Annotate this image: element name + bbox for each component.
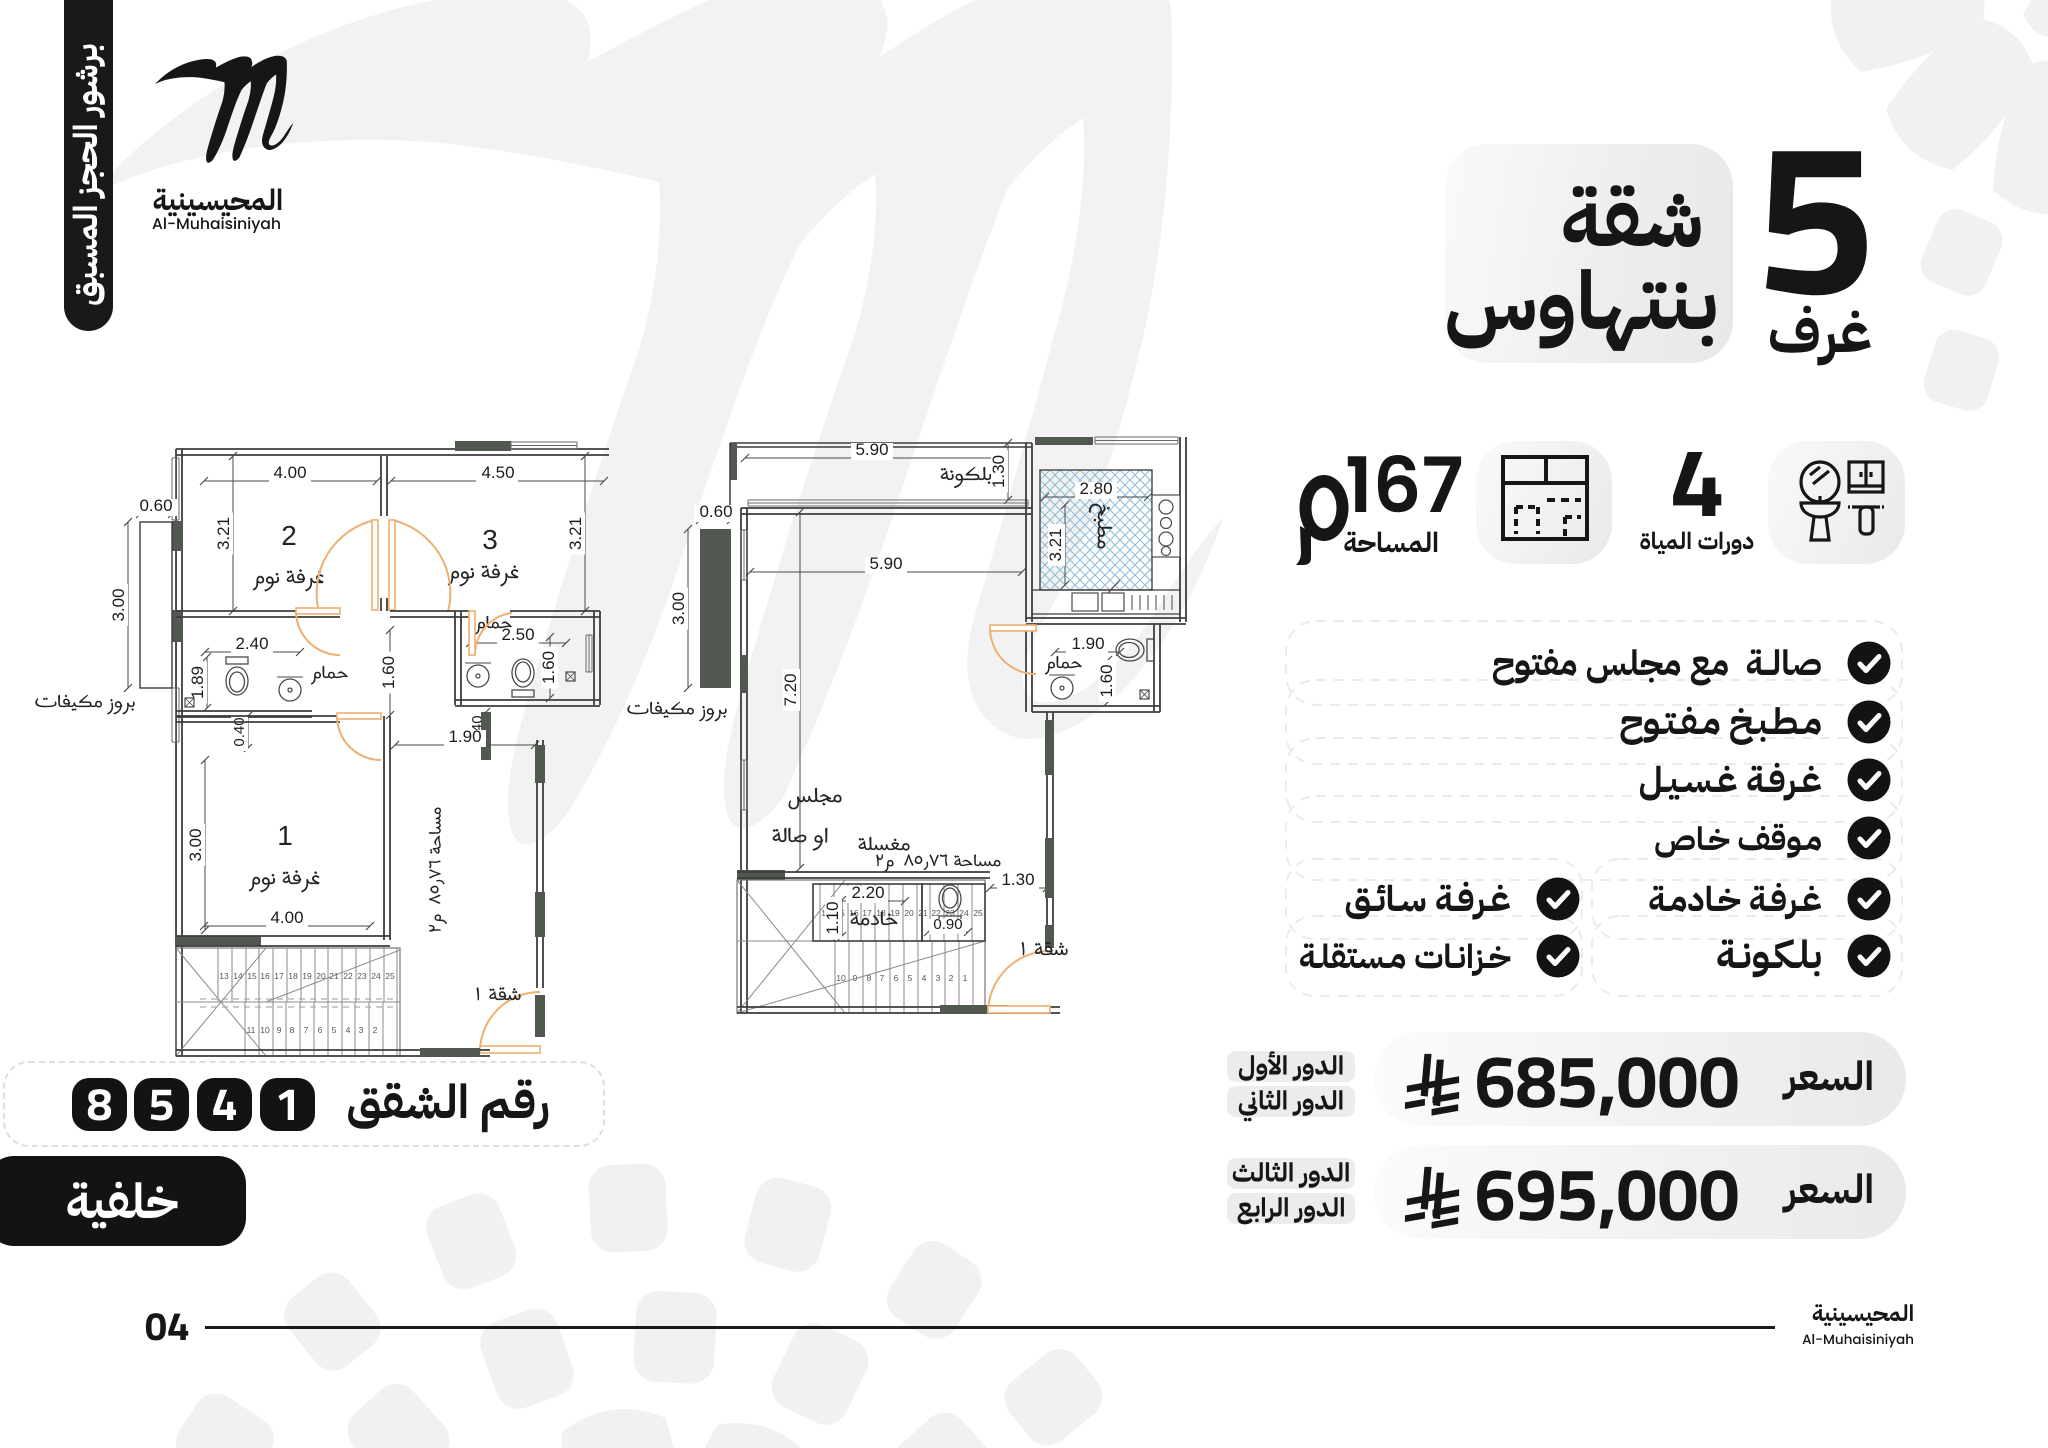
svg-text:1.30: 1.30 (989, 455, 1008, 488)
svg-text:0.90: 0.90 (933, 916, 962, 933)
svg-text:18: 18 (288, 971, 298, 981)
svg-text:2: 2 (373, 1025, 378, 1035)
svg-text:4.00: 4.00 (270, 908, 303, 927)
svg-text:2.20: 2.20 (851, 883, 884, 902)
svg-text:21: 21 (918, 908, 928, 918)
svg-text:14: 14 (233, 971, 243, 981)
svg-text:3.21: 3.21 (566, 517, 585, 550)
svg-text:0.60: 0.60 (139, 496, 172, 515)
svg-text:3.21: 3.21 (214, 517, 233, 550)
svg-text:17: 17 (862, 908, 872, 918)
svg-text:7.20: 7.20 (781, 673, 800, 706)
svg-text:10: 10 (260, 1025, 270, 1035)
svg-text:6: 6 (318, 1025, 323, 1035)
svg-text:2: 2 (281, 520, 297, 551)
svg-text:1.60: 1.60 (379, 656, 398, 689)
svg-text:19: 19 (890, 908, 900, 918)
svg-text:13: 13 (219, 971, 229, 981)
svg-text:7: 7 (304, 1025, 309, 1035)
svg-text:19: 19 (302, 971, 312, 981)
svg-text:0.60: 0.60 (699, 502, 732, 521)
svg-text:2.40: 2.40 (235, 634, 268, 653)
svg-text:5: 5 (332, 1025, 337, 1035)
svg-text:1.30: 1.30 (1001, 870, 1034, 889)
svg-text:1: 1 (963, 973, 968, 983)
svg-text:2: 2 (949, 973, 954, 983)
svg-text:1.90: 1.90 (448, 727, 481, 746)
svg-text:6: 6 (894, 973, 899, 983)
svg-text:4: 4 (922, 973, 927, 983)
svg-text:24: 24 (371, 971, 381, 981)
svg-text:4.50: 4.50 (481, 463, 514, 482)
svg-text:8: 8 (290, 1025, 295, 1035)
svg-text:1.89: 1.89 (188, 666, 207, 699)
svg-text:1: 1 (277, 820, 293, 851)
svg-text:4: 4 (346, 1025, 351, 1035)
svg-text:3: 3 (936, 973, 941, 983)
svg-text:1.90: 1.90 (1071, 634, 1104, 653)
svg-text:5: 5 (908, 973, 913, 983)
svg-text:2.80: 2.80 (1079, 479, 1112, 498)
svg-text:3: 3 (482, 524, 498, 555)
svg-text:23: 23 (357, 971, 367, 981)
svg-text:3.00: 3.00 (109, 588, 128, 621)
svg-text:3.00: 3.00 (186, 828, 205, 861)
svg-text:1.10: 1.10 (823, 901, 842, 934)
svg-text:25: 25 (385, 971, 395, 981)
svg-text:7: 7 (880, 973, 885, 983)
svg-text:17: 17 (274, 971, 284, 981)
svg-text:25: 25 (973, 908, 983, 918)
svg-text:3.21: 3.21 (1046, 528, 1065, 561)
svg-text:20: 20 (904, 908, 914, 918)
svg-text:3: 3 (359, 1025, 364, 1035)
svg-text:16: 16 (260, 971, 270, 981)
svg-text:22: 22 (343, 971, 353, 981)
svg-text:1.60: 1.60 (539, 651, 558, 684)
svg-text:15: 15 (247, 971, 257, 981)
svg-text:9: 9 (277, 1025, 282, 1035)
svg-text:4.00: 4.00 (273, 463, 306, 482)
svg-text:1.60: 1.60 (1097, 664, 1116, 697)
svg-text:5.90: 5.90 (869, 554, 902, 573)
svg-text:11: 11 (247, 1025, 256, 1035)
svg-text:3.00: 3.00 (669, 592, 688, 625)
svg-text:2.50: 2.50 (501, 625, 534, 644)
svg-text:5.90: 5.90 (855, 440, 888, 459)
